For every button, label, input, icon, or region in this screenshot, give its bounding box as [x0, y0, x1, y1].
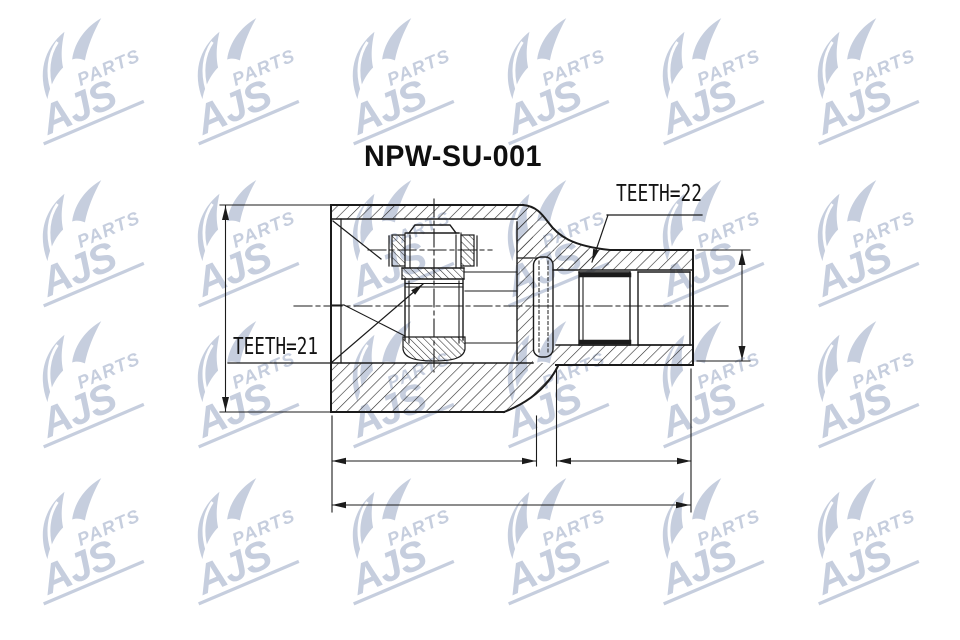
ajs-parts-watermark	[6, 311, 158, 449]
ajs-parts-watermark	[471, 8, 623, 146]
ajs-parts-watermark	[626, 468, 778, 606]
ajs-parts-watermark	[316, 468, 468, 606]
teeth-22-label: TEETH=22	[616, 181, 702, 207]
watermark-grid	[6, 8, 933, 606]
ajs-parts-watermark	[161, 8, 313, 146]
ajs-parts-watermark	[781, 311, 933, 449]
ajs-parts-watermark	[161, 170, 313, 308]
ajs-parts-watermark	[6, 8, 158, 146]
housing-top-wall-hatch	[331, 205, 517, 219]
ajs-parts-watermark	[471, 468, 623, 606]
ajs-parts-watermark	[626, 311, 778, 449]
teeth-21-label: TEETH=21	[233, 334, 318, 360]
part-number-title: NPW-SU-001	[364, 140, 542, 173]
shaft-top-wall-hatch	[553, 250, 693, 270]
technical-drawing-svg: PARTS AJS	[0, 0, 960, 640]
spline-collar-hatch	[402, 268, 464, 279]
catalog-product-image: PARTS AJS	[0, 0, 960, 640]
ajs-parts-watermark	[316, 8, 468, 146]
ajs-parts-watermark	[626, 8, 778, 146]
ajs-parts-watermark	[161, 468, 313, 606]
ajs-parts-watermark	[781, 468, 933, 606]
ajs-parts-watermark	[781, 8, 933, 146]
shaft-bottom-wall-hatch	[553, 345, 693, 365]
ajs-parts-watermark	[161, 311, 313, 449]
ajs-parts-watermark	[781, 170, 933, 308]
ajs-parts-watermark	[6, 170, 158, 308]
ajs-parts-watermark	[6, 468, 158, 606]
